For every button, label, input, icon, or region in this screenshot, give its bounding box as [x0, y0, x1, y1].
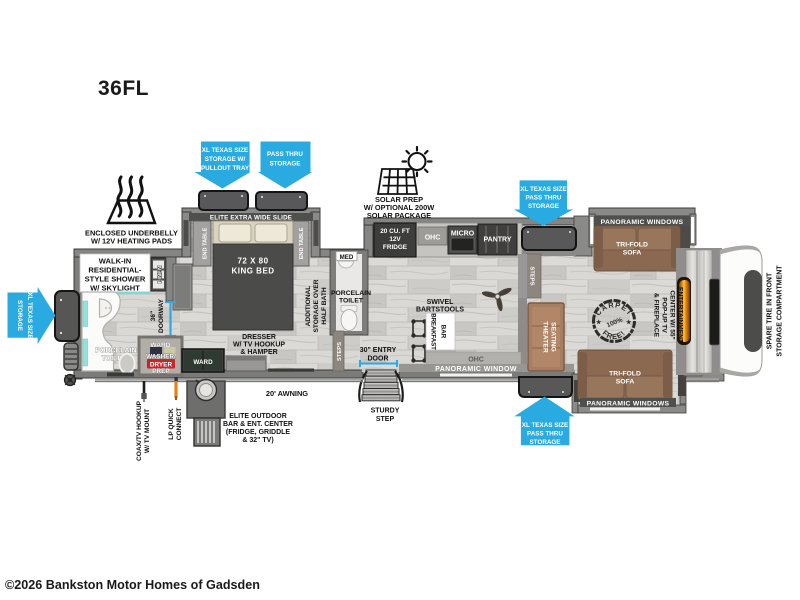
- svg-text:BARTSTOOLS: BARTSTOOLS: [416, 307, 464, 314]
- svg-text:PULLOUT TRAY: PULLOUT TRAY: [201, 165, 250, 172]
- svg-text:W/ TV MOUNT: W/ TV MOUNT: [144, 409, 151, 453]
- svg-text:SEATING: SEATING: [550, 322, 557, 352]
- svg-text:WARD: WARD: [193, 359, 213, 366]
- svg-text:RESIDENTIAL-: RESIDENTIAL-: [88, 266, 142, 275]
- svg-text:DOORWAY: DOORWAY: [158, 298, 165, 333]
- svg-text:★: ★: [626, 319, 632, 326]
- svg-text:XL TEXAS SIZE: XL TEXAS SIZE: [202, 147, 248, 154]
- svg-text:BAR: BAR: [440, 325, 447, 339]
- svg-text:LINEN: LINEN: [158, 266, 164, 283]
- svg-text:KING BED: KING BED: [231, 267, 274, 276]
- svg-text:STORAGE: STORAGE: [269, 161, 300, 168]
- svg-text:PORCELAIN: PORCELAIN: [95, 348, 136, 355]
- svg-text:BREAKFAST: BREAKFAST: [430, 313, 437, 350]
- svg-text:END TABLE: END TABLE: [299, 227, 305, 259]
- svg-text:DRESSER: DRESSER: [242, 334, 276, 341]
- svg-text:XL TEXAS SIZE: XL TEXAS SIZE: [522, 422, 568, 429]
- svg-text:STYLE SHOWER: STYLE SHOWER: [85, 275, 146, 284]
- svg-text:TOILET: TOILET: [339, 298, 364, 305]
- svg-text:THEATER: THEATER: [542, 321, 549, 353]
- svg-text:12V: 12V: [389, 236, 401, 243]
- svg-text:OHC: OHC: [468, 357, 484, 364]
- svg-text:ELITE OUTDOOR: ELITE OUTDOOR: [229, 413, 287, 420]
- svg-text:STURDY: STURDY: [371, 408, 400, 415]
- svg-text:& HAMPER: & HAMPER: [240, 349, 277, 356]
- svg-text:CENTER W/ 55": CENTER W/ 55": [669, 290, 676, 339]
- svg-text:PASS THRU: PASS THRU: [527, 431, 563, 438]
- svg-text:PANORAMIC WINDOW: PANORAMIC WINDOW: [435, 366, 517, 373]
- svg-text:W/ SKYLIGHT: W/ SKYLIGHT: [90, 284, 140, 293]
- svg-text:W/ 12V HEATING PADS: W/ 12V HEATING PADS: [91, 237, 172, 246]
- svg-text:STORAGE: STORAGE: [16, 300, 23, 331]
- svg-text:CONNECT: CONNECT: [176, 408, 183, 441]
- svg-text:W/ TV HOOKUP: W/ TV HOOKUP: [233, 342, 285, 349]
- svg-text:TRI-FOLD: TRI-FOLD: [609, 371, 641, 378]
- svg-text:20 CU. FT: 20 CU. FT: [380, 228, 410, 235]
- svg-text:STEPS: STEPS: [337, 342, 343, 361]
- svg-text:POP-UP TV: POP-UP TV: [661, 297, 668, 333]
- svg-text:20' AWNING: 20' AWNING: [266, 389, 308, 398]
- svg-text:ENTERTAINMENT: ENTERTAINMENT: [677, 287, 684, 343]
- svg-text:SWIVEL: SWIVEL: [427, 299, 455, 306]
- svg-text:TRI-FOLD: TRI-FOLD: [616, 242, 648, 249]
- svg-text:PREP: PREP: [152, 368, 170, 375]
- svg-text:SPARE TIRE IN FRONT: SPARE TIRE IN FRONT: [767, 272, 774, 349]
- svg-text:HALF BATH: HALF BATH: [321, 287, 328, 324]
- svg-text:PORCELAIN: PORCELAIN: [331, 290, 371, 297]
- svg-text:36": 36": [150, 311, 157, 321]
- svg-text:STORAGE W/: STORAGE W/: [205, 156, 246, 163]
- svg-text:SOFA: SOFA: [623, 250, 642, 257]
- svg-text:ADDITIONAL: ADDITIONAL: [305, 286, 312, 327]
- svg-text:★: ★: [596, 319, 602, 326]
- svg-text:PANTRY: PANTRY: [484, 237, 512, 244]
- svg-text:& FIREPLACE: & FIREPLACE: [653, 293, 660, 338]
- svg-text:LP QUICK: LP QUICK: [168, 408, 175, 440]
- svg-text:STORAGE: STORAGE: [529, 439, 560, 446]
- svg-text:SOLAR PACKAGE: SOLAR PACKAGE: [367, 211, 431, 220]
- svg-text:STORAGE: STORAGE: [528, 203, 559, 210]
- svg-text:PASS THRU: PASS THRU: [267, 151, 303, 158]
- svg-text:END TABLE: END TABLE: [203, 227, 209, 259]
- svg-text:& 32" TV): & 32" TV): [242, 437, 273, 444]
- svg-text:WALK-IN: WALK-IN: [99, 257, 131, 266]
- svg-text:COAX/TV HOOKUP: COAX/TV HOOKUP: [136, 400, 143, 461]
- svg-text:XL TEXAS SIZE: XL TEXAS SIZE: [520, 186, 566, 193]
- svg-text:PASS THRU: PASS THRU: [526, 195, 562, 202]
- svg-text:PANORAMIC WINDOWS: PANORAMIC WINDOWS: [587, 400, 670, 407]
- svg-text:MICRO: MICRO: [451, 231, 475, 238]
- svg-text:STEP: STEP: [376, 416, 395, 423]
- svg-text:STEPS: STEPS: [529, 266, 535, 285]
- svg-text:PANORAMIC WINDOWS: PANORAMIC WINDOWS: [601, 219, 684, 226]
- svg-text:BAR & ENT. CENTER: BAR & ENT. CENTER: [223, 421, 293, 428]
- svg-text:(FRIDGE, GRIDDLE: (FRIDGE, GRIDDLE: [226, 429, 290, 436]
- svg-text:STORAGE COMPARTMENT: STORAGE COMPARTMENT: [777, 265, 784, 357]
- svg-text:STORAGE OVER: STORAGE OVER: [313, 279, 320, 332]
- svg-text:30" ENTRY: 30" ENTRY: [360, 347, 397, 354]
- svg-text:MED: MED: [340, 254, 354, 261]
- svg-text:FRIDGE: FRIDGE: [383, 244, 408, 251]
- svg-text:DOOR: DOOR: [368, 356, 389, 363]
- svg-text:SOFA: SOFA: [616, 379, 635, 386]
- svg-text:©2026 Bankston Motor Homes of: ©2026 Bankston Motor Homes of Gadsden: [5, 578, 260, 592]
- svg-text:72 X 80: 72 X 80: [237, 257, 268, 266]
- svg-text:XL TEXAS SIZE: XL TEXAS SIZE: [26, 292, 33, 338]
- svg-text:36FL: 36FL: [98, 77, 149, 100]
- svg-text:OHC: OHC: [425, 235, 441, 242]
